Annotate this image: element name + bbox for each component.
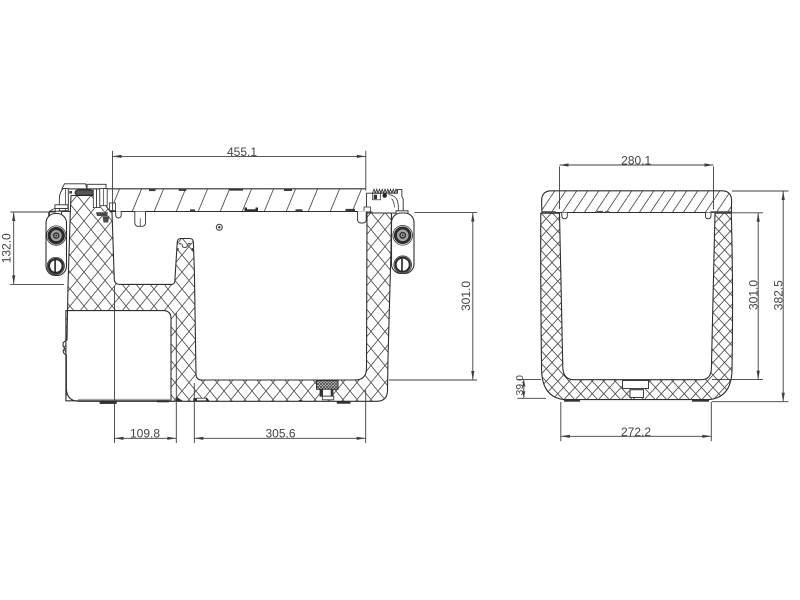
svg-text:39.0: 39.0 (514, 375, 526, 396)
svg-text:382.5: 382.5 (771, 280, 785, 310)
svg-text:455.1: 455.1 (227, 145, 257, 159)
svg-text:280.1: 280.1 (621, 154, 651, 168)
svg-text:132.0: 132.0 (0, 233, 14, 263)
svg-text:109.8: 109.8 (130, 427, 160, 441)
svg-text:301.0: 301.0 (746, 280, 760, 310)
svg-text:301.0: 301.0 (459, 281, 473, 311)
svg-text:305.6: 305.6 (265, 427, 295, 441)
svg-text:272.2: 272.2 (621, 425, 651, 439)
